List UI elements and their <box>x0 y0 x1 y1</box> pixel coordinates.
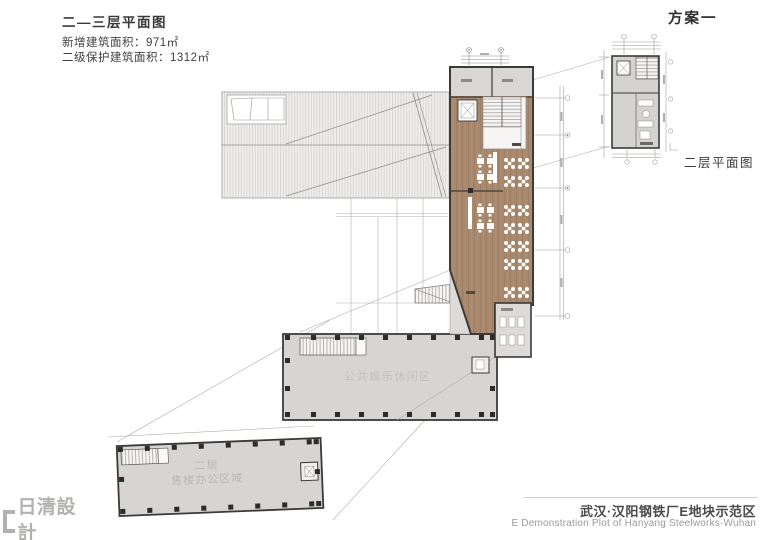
small-room-middle-plan <box>472 357 489 373</box>
stair-core <box>483 97 526 149</box>
drawing-sheet: 二—三层平面图 新增建筑面积：971㎡ 二级保护建筑面积：1312㎡ 方案一 二… <box>0 0 760 540</box>
escalator <box>415 284 453 303</box>
stair-small-plan <box>636 57 658 79</box>
plan-small <box>612 56 659 148</box>
floor2-zone-label: 二层 售楼办公区域 <box>157 457 256 489</box>
project-title-en: E Demonstration Plot of Hanyang Steelwor… <box>511 518 756 529</box>
tiny-room-label <box>501 308 513 311</box>
protected-area-text: 二级保护建筑面积：1312㎡ <box>62 49 210 65</box>
floor-plan-drawing <box>0 0 760 540</box>
logo: 日清設計 ARCHITECTURAL DESIGN <box>3 495 91 540</box>
tiny-room-label <box>640 142 653 145</box>
page-title: 二—三层平面图 <box>62 11 167 31</box>
roof-plan <box>222 92 450 198</box>
public-zone-label: 公共娱乐休闲区 <box>336 368 440 384</box>
tiny-room-label <box>461 79 472 82</box>
tiny-room-label <box>512 143 521 146</box>
new-area-text: 新增建筑面积：971㎡ <box>62 34 179 50</box>
stair-middle-plan <box>300 338 366 355</box>
label-leader <box>670 143 678 150</box>
logo-mark: 日清設計 <box>3 495 91 540</box>
elevator <box>458 100 477 121</box>
tiny-room-label <box>466 291 475 294</box>
footer-divider <box>524 497 757 498</box>
small-plan-caption: 二层平面图 <box>684 152 754 171</box>
dimension-right <box>535 86 570 320</box>
logo-text: 日清設計 <box>17 495 91 540</box>
logo-bracket-icon <box>3 510 15 533</box>
building-main-plan <box>450 67 533 357</box>
tiny-room-label <box>502 79 513 82</box>
elevator-small-plan <box>617 61 630 75</box>
dimension-top <box>461 48 509 68</box>
roof-opening <box>227 95 286 124</box>
lower-wall-outline <box>336 198 450 334</box>
scheme-label: 方案一 <box>668 7 718 28</box>
toilet-room <box>495 303 531 357</box>
bar-counter <box>468 197 472 229</box>
